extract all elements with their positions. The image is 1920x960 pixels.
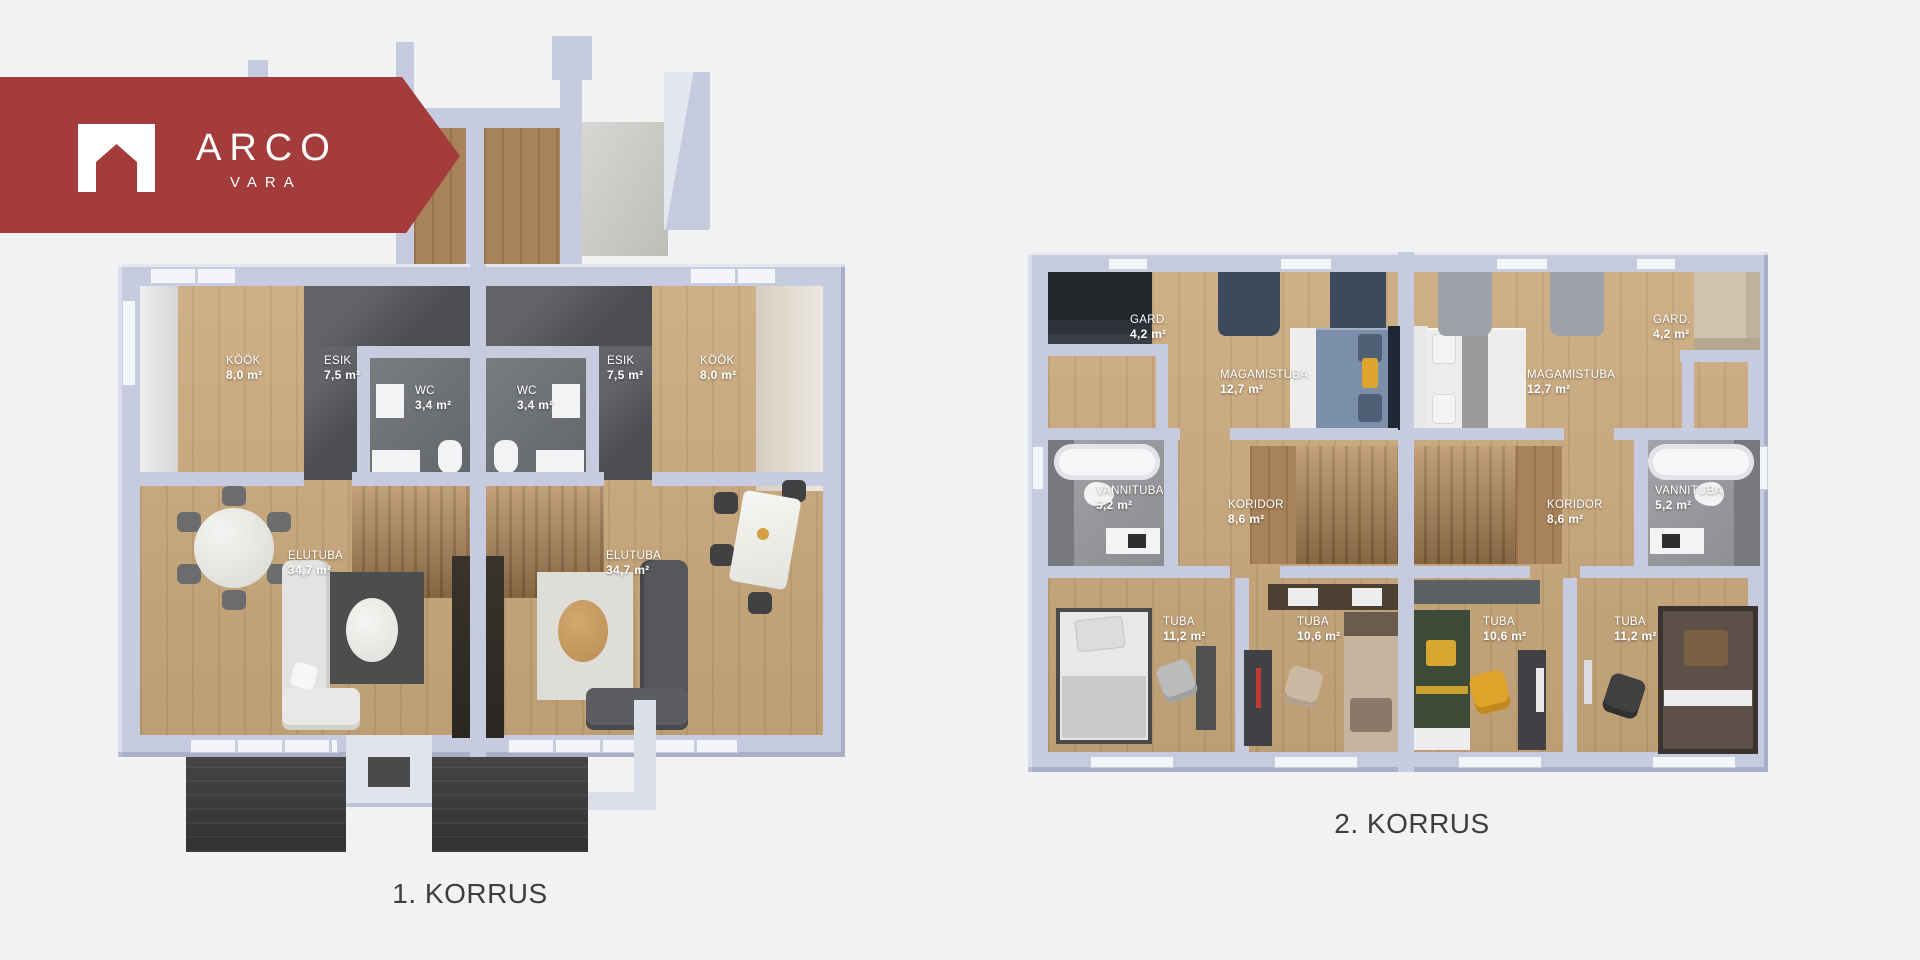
plan2-window-bottom-c xyxy=(1458,756,1542,768)
plan2-tuba3-bed xyxy=(1414,610,1470,750)
plan2-row1-wall-b xyxy=(1230,428,1398,440)
plan1-terrace-left xyxy=(186,757,346,852)
plan1-sofa-left-chaise xyxy=(282,688,360,730)
plan1-dining-chair xyxy=(222,590,246,610)
room-area: 12,7 m² xyxy=(1220,382,1308,396)
plan2-row1-wall-d xyxy=(1614,428,1748,440)
plan2-window-top-b xyxy=(1280,258,1332,270)
room-area: 7,5 m² xyxy=(324,368,360,382)
room-area: 11,2 m² xyxy=(1163,629,1206,643)
plan1-kitchen-right-cabinets xyxy=(756,286,823,491)
plan1-pendant-lamp xyxy=(757,528,769,540)
room-area: 8,6 m² xyxy=(1547,512,1603,526)
room-label-koridor-right: KORIDOR 8,6 m² xyxy=(1547,498,1603,526)
plan2-row2-wall-c xyxy=(1414,566,1530,578)
plan2-curtain-left-b xyxy=(1330,272,1386,336)
plan1-row-wall-c xyxy=(486,472,604,486)
plan2-tuba4-sheet xyxy=(1664,690,1752,706)
plan1-dining-chair-right xyxy=(714,492,738,514)
room-name: VANNITUBA xyxy=(1655,485,1723,497)
plan1-tv-wall-right xyxy=(486,556,504,738)
plan1-window-bottom-left xyxy=(190,739,338,753)
plan1-wc-right-top-wall xyxy=(486,346,599,358)
plan2-window-bottom-d xyxy=(1652,756,1736,768)
plan1-row-wall-b xyxy=(352,472,470,486)
plan2-tuba-wall-b xyxy=(1563,578,1577,752)
room-name: MAGAMISTUBA xyxy=(1527,369,1615,381)
plan2-tuba2-wardrobe-door xyxy=(1352,588,1382,606)
room-label-elutuba-right: ELUTUBA 34,7 m² xyxy=(606,549,661,577)
plan1-esik-right-tile-top xyxy=(486,286,652,346)
room-label-magamistuba-right: MAGAMISTUBA 12,7 m² xyxy=(1527,368,1615,396)
room-label-koridor-left: KORIDOR 8,6 m² xyxy=(1228,498,1284,526)
plan1-wc-left-toilet xyxy=(438,440,462,474)
room-label-magamistuba-left: MAGAMISTUBA 12,7 m² xyxy=(1220,368,1308,396)
room-area: 5,2 m² xyxy=(1655,498,1723,512)
plan1-tv-wall-left xyxy=(452,556,470,738)
plan2-gard-right-closet xyxy=(1694,272,1760,350)
room-label-kook-left: KÖÖK 8,0 m² xyxy=(226,354,262,382)
plan1-vestibule-divider-wall xyxy=(466,128,484,264)
plan2-tuba3-stripe xyxy=(1416,686,1468,694)
room-name: GARD. xyxy=(1130,314,1168,326)
room-name: TUBA xyxy=(1297,616,1329,628)
plan2-bed-right-runner xyxy=(1462,328,1488,428)
room-area: 5,2 m² xyxy=(1096,498,1164,512)
plan1-entry-door-slot xyxy=(368,757,410,787)
room-name: TUBA xyxy=(1163,616,1195,628)
plan2-party-wall xyxy=(1398,252,1414,772)
plan1-row-wall-a xyxy=(140,472,304,486)
room-label-elutuba-left: ELUTUBA 34,7 m² xyxy=(288,549,343,577)
plan2-gard-left-wall xyxy=(1048,344,1168,356)
room-area: 11,2 m² xyxy=(1614,629,1657,643)
plan2-window-left-side xyxy=(1032,446,1044,490)
plan1-bottom-right-wall-foot xyxy=(588,792,656,810)
room-area: 10,6 m² xyxy=(1297,629,1340,643)
room-name: KORIDOR xyxy=(1547,499,1603,511)
plan1-wc-right-cabinet xyxy=(552,384,580,418)
room-label-tuba-4: TUBA 11,2 m² xyxy=(1614,615,1657,643)
plan2-tuba2-wardrobe-door xyxy=(1288,588,1318,606)
room-label-tuba-1: TUBA 11,2 m² xyxy=(1163,615,1206,643)
plan2-bathtub-right xyxy=(1648,444,1754,480)
floorplan-canvas: KÖÖK 8,0 m² ESIK 7,5 m² WC 3,4 m² WC 3,4… xyxy=(0,0,1920,960)
plan1-party-wall-bottom xyxy=(470,480,486,757)
plan1-wc-right-toilet xyxy=(494,440,518,474)
plan1-terrace-right xyxy=(432,757,588,852)
plan2-row2-wall-d xyxy=(1580,566,1748,578)
brand-banner: ARCO VARA xyxy=(0,77,460,233)
plan2-tuba4-pillow xyxy=(1684,630,1728,666)
room-label-gard-right: GARD. 4,2 m² xyxy=(1653,313,1691,341)
brand-text: ARCO VARA xyxy=(196,129,338,191)
plan2-tuba1-desk xyxy=(1196,646,1216,730)
plan1-entry-side-wall xyxy=(664,72,710,230)
room-label-kook-right: KÖÖK 8,0 m² xyxy=(700,354,736,382)
room-name: KÖÖK xyxy=(700,355,734,367)
plan2-tuba4-monitor xyxy=(1584,660,1592,704)
plan2-gard-right-side-wall xyxy=(1682,350,1694,434)
plan1-chimney xyxy=(552,36,592,80)
plan1-party-wall-top xyxy=(470,264,486,480)
plan1-entry-concrete-pad xyxy=(582,122,668,256)
plan2-curtain-right-b xyxy=(1550,272,1604,336)
room-name: WC xyxy=(415,385,435,397)
room-label-vannituba-left: VANNITUBA 5,2 m² xyxy=(1096,484,1164,512)
room-label-gard-left: GARD. 4,2 m² xyxy=(1130,313,1168,341)
room-name: ESIK xyxy=(607,355,634,367)
room-name: ELUTUBA xyxy=(606,550,661,562)
plan2-tuba3-pillow xyxy=(1426,640,1456,666)
room-area: 34,7 m² xyxy=(288,563,343,577)
room-label-wc-left: WC 3,4 m² xyxy=(415,384,451,412)
room-label-esik-left: ESIK 7,5 m² xyxy=(324,354,360,382)
room-name: TUBA xyxy=(1483,616,1515,628)
plan1-wc-right-side-wall xyxy=(586,358,599,480)
room-name: ESIK xyxy=(324,355,351,367)
room-area: 8,0 m² xyxy=(226,368,262,382)
room-area: 10,6 m² xyxy=(1483,629,1526,643)
plan1-esik-left-tile-top xyxy=(304,286,470,346)
plan2-window-top-d xyxy=(1636,258,1676,270)
room-label-esik-right: ESIK 7,5 m² xyxy=(607,354,643,382)
plan2-vanity-right-item xyxy=(1662,534,1680,548)
plan1-wc-left-cabinet xyxy=(376,384,404,418)
room-name: WC xyxy=(517,385,537,397)
plan1-wc-right-vanity xyxy=(536,450,584,472)
room-name: ELUTUBA xyxy=(288,550,343,562)
room-area: 12,7 m² xyxy=(1527,382,1615,396)
plan2-stairs-left xyxy=(1296,446,1398,564)
plan2-tuba1-pillow xyxy=(1074,616,1125,653)
plan1-coffee-table-right xyxy=(558,600,608,662)
plan1-round-dining-table xyxy=(194,508,274,588)
plan2-row2-wall-b xyxy=(1280,566,1398,578)
brand-subname: VARA xyxy=(230,174,338,191)
plan2-tuba2-pillow xyxy=(1350,698,1392,732)
plan1-coffee-table-left xyxy=(346,598,398,662)
room-name: VANNITUBA xyxy=(1096,485,1164,497)
plan2-window-bottom-b xyxy=(1274,756,1358,768)
plan2-gard-left-side-wall xyxy=(1156,344,1168,434)
plan1-sofa-right xyxy=(640,560,688,702)
plan2-bed-right-pillow xyxy=(1432,394,1456,424)
room-area: 4,2 m² xyxy=(1130,327,1168,341)
plan2-bathtub-left xyxy=(1054,444,1160,480)
plan2-bath-right-wall xyxy=(1634,440,1648,566)
room-area: 3,4 m² xyxy=(415,398,451,412)
room-area: 34,7 m² xyxy=(606,563,661,577)
room-name: GARD. xyxy=(1653,314,1691,326)
brand-name: ARCO xyxy=(196,129,338,167)
plan2-bed-left-headboard xyxy=(1388,326,1400,430)
floor1-caption: 1. KORRUS xyxy=(310,878,630,910)
plan1-window-bottom-right xyxy=(508,739,738,753)
plan2-tuba2-pc-accent xyxy=(1256,668,1261,708)
plan2-vanity-left-item xyxy=(1128,534,1146,548)
plan1-dining-chair-right xyxy=(748,592,772,614)
plan2-window-top-a xyxy=(1108,258,1148,270)
plan2-stairs-right xyxy=(1414,446,1516,564)
plan2-bed-left-pillow xyxy=(1358,394,1382,422)
plan2-bed-left-throw xyxy=(1362,358,1378,388)
plan1-left-side-window xyxy=(122,300,136,386)
room-name: TUBA xyxy=(1614,616,1646,628)
room-area: 8,0 m² xyxy=(700,368,736,382)
plan1-dining-chair xyxy=(177,564,201,584)
plan2-bath-left-wall xyxy=(1164,440,1178,566)
plan1-wc-left-top-wall xyxy=(357,346,470,358)
plan2-window-top-c xyxy=(1496,258,1548,270)
plan1-vestibule-top-wall xyxy=(414,108,570,128)
room-label-vannituba-right: VANNITUBA 5,2 m² xyxy=(1655,484,1723,512)
plan1-vestibule-floor-right xyxy=(484,128,564,264)
arco-house-icon xyxy=(78,124,155,192)
room-name: MAGAMISTUBA xyxy=(1220,369,1308,381)
room-area: 4,2 m² xyxy=(1653,327,1691,341)
plan2-bed-right-pillow xyxy=(1432,334,1456,364)
plan2-tuba4-bed xyxy=(1658,606,1758,754)
plan1-kitchen-left-cabinets xyxy=(140,286,178,486)
plan2-row1-wall-a xyxy=(1048,428,1180,440)
room-label-wc-right: WC 3,4 m² xyxy=(517,384,553,412)
plan1-kitchen-left-window xyxy=(150,268,236,284)
plan1-vestibule-right-wall xyxy=(560,77,582,264)
room-area: 8,6 m² xyxy=(1228,512,1284,526)
plan2-tuba3-monitor xyxy=(1536,668,1544,712)
plan1-dining-chair xyxy=(267,512,291,532)
plan1-kitchen-right-window xyxy=(690,268,776,284)
plan1-wc-left-vanity xyxy=(372,450,420,472)
plan2-window-bottom-a xyxy=(1090,756,1174,768)
plan2-row1-wall-c xyxy=(1414,428,1564,440)
room-area: 3,4 m² xyxy=(517,398,553,412)
room-area: 7,5 m² xyxy=(607,368,643,382)
plan2-tuba3-cabinet xyxy=(1414,580,1540,604)
plan2-row2-wall-a xyxy=(1048,566,1230,578)
room-label-tuba-2: TUBA 10,6 m² xyxy=(1297,615,1340,643)
floor2-caption: 2. KORRUS xyxy=(1252,808,1572,840)
room-label-tuba-3: TUBA 10,6 m² xyxy=(1483,615,1526,643)
plan2-tuba1-blanket xyxy=(1062,676,1146,738)
room-name: KÖÖK xyxy=(226,355,260,367)
plan1-dining-chair xyxy=(222,486,246,506)
plan2-curtain-right-a xyxy=(1438,272,1492,336)
plan2-curtain-left-a xyxy=(1218,272,1280,336)
room-name: KORIDOR xyxy=(1228,499,1284,511)
